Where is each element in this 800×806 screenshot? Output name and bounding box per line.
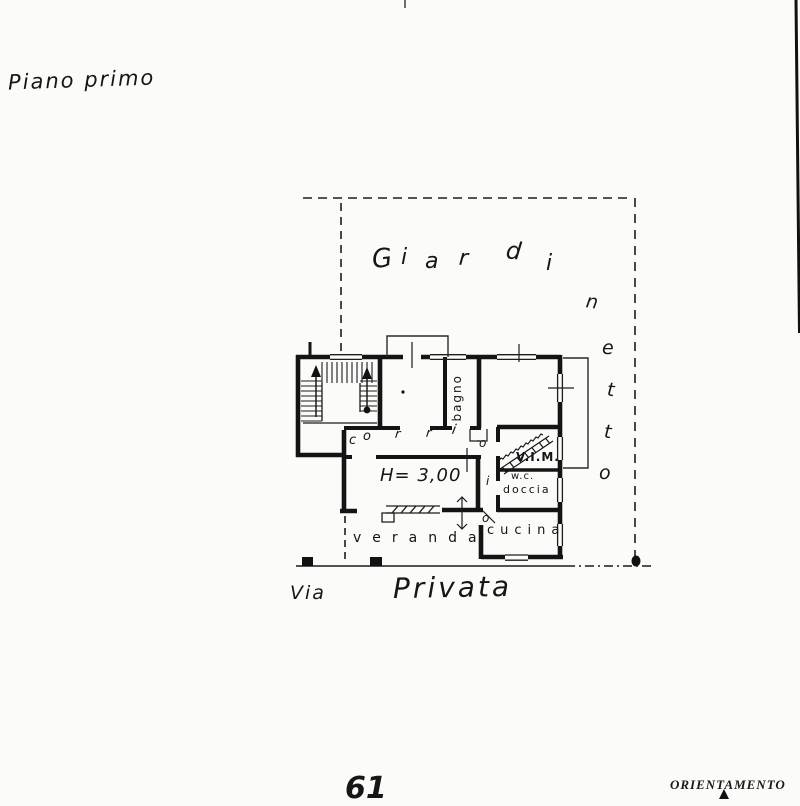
floor-plan-drawing	[0, 0, 800, 799]
dimension-ticks	[412, 342, 574, 529]
corridor-label-letter: o	[363, 429, 371, 444]
stair-treads-left-flight	[301, 381, 322, 421]
garden-label-letter: r	[458, 246, 469, 272]
sheet-number: 61	[345, 771, 387, 806]
garden-label-letter: e	[602, 337, 614, 359]
veranda-glazing-hatch	[392, 506, 434, 513]
garden-label-letter: t	[603, 421, 612, 443]
veranda-door-mark	[457, 497, 467, 529]
orientation-label: ORIENTAMENTO	[670, 777, 786, 793]
room-height-note: H= 3,00	[380, 465, 461, 486]
garden-label-letter: d	[505, 236, 523, 265]
stair-treads-top-flight	[322, 362, 372, 383]
garden-label-letter: a	[425, 249, 438, 274]
right-balcony	[563, 358, 588, 468]
stair-up-arrow-head	[311, 365, 321, 377]
garden-label-letter: t	[606, 379, 615, 401]
garden-label-letter: i	[546, 251, 552, 276]
room-label-cucina: cucina	[487, 523, 565, 538]
street-label-privata: Privata	[393, 570, 513, 605]
corridor-label-letter: i	[486, 474, 489, 488]
street-fence	[296, 557, 651, 566]
street-label-via: Via	[290, 582, 326, 604]
garden-label-letter: i	[401, 245, 407, 270]
scanned-floor-plan-page: { "page": { "floor_label": "Piano primo"…	[0, 0, 800, 799]
stair-arrow-head	[362, 367, 372, 379]
corridor-label-letter: c	[349, 433, 356, 448]
staircase	[301, 362, 377, 423]
room-label-vim: V.I.M.	[516, 450, 560, 464]
fence-post	[302, 557, 313, 566]
top-balcony	[387, 336, 448, 357]
garden-label-letter: G	[370, 243, 393, 275]
fence-post	[370, 557, 382, 566]
room-label-wc: w.c.	[511, 471, 534, 482]
veranda-step	[382, 513, 394, 522]
stair-well-border	[303, 383, 377, 423]
stair-arrow-origin-dot	[364, 407, 371, 414]
room-label-doccia: doccia	[503, 483, 551, 496]
room-label-veranda: veranda	[353, 530, 488, 546]
room-label-bagno: bagno	[450, 374, 464, 422]
corridor-label-letter: o	[479, 436, 486, 450]
boundary-marker-dot	[632, 556, 641, 567]
garden-label-letter: o	[599, 462, 611, 484]
room-dot	[401, 390, 404, 393]
stair-treads-right-flight	[360, 381, 377, 411]
page-title-floor-label: Piano primo	[8, 65, 156, 94]
scan-edge-artifact	[405, 0, 800, 333]
